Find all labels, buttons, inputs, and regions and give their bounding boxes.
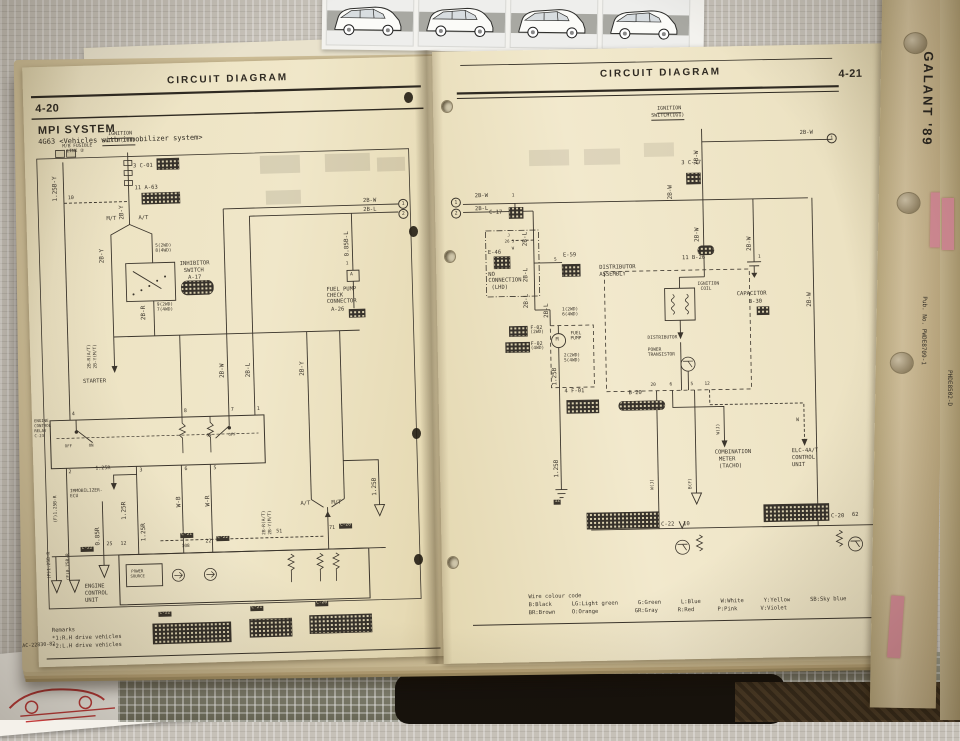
diagram-label: 2B-W — [747, 236, 753, 251]
diagram-label: 2B-L — [523, 268, 529, 283]
car-illustration — [602, 0, 691, 50]
diagram-label: 108 — [182, 545, 190, 550]
diagram-label: 11 A-63 — [135, 186, 158, 192]
diagram-label: 2B-Y — [99, 249, 105, 264]
connector-icon-a26 — [349, 309, 365, 317]
diagram-label: CONTROL — [85, 591, 108, 597]
diagram-label: 20 — [650, 384, 656, 389]
diagram-label: 4 — [72, 412, 75, 417]
diagram-label: 2B-W — [694, 227, 700, 242]
diagram-label: C-22 — [216, 536, 229, 541]
spine2-code: PHDE8502-D — [946, 370, 953, 406]
car-illustration — [510, 0, 599, 49]
car-illustration — [326, 0, 415, 47]
diagram-label: 2B-W — [668, 185, 674, 200]
diagram-label: C-22 — [81, 547, 94, 552]
diagram-label: INHIBITOR — [180, 261, 210, 267]
diagram-label: ON — [89, 444, 94, 448]
diagram-label: 2B-W — [363, 199, 376, 205]
diagram-label: OFF — [65, 444, 72, 448]
diagram-label: 2B-Y — [299, 361, 305, 376]
resistor-icon — [836, 530, 842, 546]
punch-hole — [414, 554, 423, 565]
diagram-label: 3 C-01 — [133, 164, 153, 170]
diagram-label: (2WD) — [530, 331, 544, 336]
diagram-label: 7 — [231, 408, 234, 413]
table-shadow — [395, 674, 785, 724]
diagram-label: ON — [206, 433, 211, 437]
diagram-label: (TACHO) — [719, 464, 742, 470]
diagram-label: 1.25B — [552, 368, 558, 386]
diagram-label: 2B-Y(M/T) — [269, 510, 274, 535]
spine-pub-no: Pub. No. PWDE8709-1 — [920, 296, 928, 365]
pink-index-tab — [942, 198, 954, 250]
ignition-coil-box — [665, 288, 696, 321]
punch-hole — [441, 100, 453, 113]
diagram-label: 1 — [512, 194, 515, 199]
diagram-label: 1.25B-Y — [52, 176, 59, 201]
connector-icon-f02-2wd — [509, 326, 527, 336]
diagram-label: W-B — [176, 496, 182, 507]
diagram-label: SOURCE — [130, 574, 145, 578]
connector-icon-e46 — [494, 257, 510, 269]
diagram-label: W — [796, 418, 799, 423]
diagram-label: B-30 — [749, 300, 762, 306]
diagram-label: 2B-W — [800, 131, 813, 137]
diagram-label: A — [350, 273, 353, 278]
diagram-label: A-17 — [188, 276, 201, 282]
diagram-label: C-20 — [831, 514, 844, 520]
connector-icon-f01 — [567, 400, 599, 414]
diagram-label: CAPACITOR — [737, 292, 767, 298]
diagram-label: C-22 — [158, 611, 171, 616]
diagram-label: C-20 — [339, 523, 352, 528]
connector-icon-b20 — [619, 401, 665, 411]
diagram-label: W(J) — [651, 479, 656, 490]
diagram-label: M/T — [331, 501, 341, 507]
diagram-label: 5 — [213, 466, 216, 471]
wire-arrows — [108, 360, 331, 523]
diagram-label: 8(4WD) — [155, 249, 171, 254]
diagram-label: 2B-L — [245, 363, 251, 378]
diagram-label: C-23 — [34, 434, 44, 438]
diagram-label: 2B-R — [141, 306, 147, 321]
diagram-label: 12 — [120, 542, 126, 547]
connector-pinout-c21 — [250, 618, 292, 637]
diagram-label: 11 B-26 — [682, 256, 705, 262]
diagram-label: B(F) — [689, 478, 694, 489]
diagram-label: 3 — [139, 468, 142, 473]
diagram-label: ECU — [70, 495, 78, 500]
diagram-label: METER — [719, 457, 736, 463]
connector-icon-f02-4wd — [506, 342, 530, 352]
diagram-label: 6(4WD) — [562, 313, 578, 318]
diagram-label: 5 — [554, 259, 557, 264]
resistor-icon — [288, 554, 295, 582]
manual-page-4-21: CIRCUIT DIAGRAM 4-21 — [432, 43, 900, 664]
power-transistor-icon — [681, 357, 695, 371]
diagram-label: COMBINATION — [715, 450, 752, 456]
diagram-label: 2B-Y(M/T) — [94, 344, 99, 369]
diagram-label: A/T — [138, 216, 148, 222]
diagram-label: 2B-L — [475, 207, 488, 213]
diagram-label: A-26 — [331, 308, 344, 314]
connector-pinout-c22 — [587, 512, 659, 529]
diagram-label: LINK ② — [66, 150, 84, 155]
wire-colour-code-title: Wire colour code — [528, 594, 581, 601]
second-manual-spine: PHDE8502-D — [940, 0, 960, 720]
diagram-label: E-46 — [488, 251, 501, 257]
diagram-label: UNIT — [85, 599, 98, 605]
diagram-label: OFF — [228, 433, 235, 437]
diagram-label: 1 — [257, 407, 260, 412]
spine-title: GALANT '89 — [920, 51, 937, 147]
transistor-icon — [675, 540, 689, 554]
wires — [462, 125, 887, 625]
diagram-label: 2B-L — [544, 303, 550, 318]
wires — [33, 144, 441, 659]
diagram-label: 51 — [276, 529, 282, 534]
connector-icon-a17 — [181, 280, 213, 295]
diagram-label: DISTRIBUTOR — [648, 336, 678, 341]
connector-pinout-c20 — [310, 614, 372, 634]
resistor-icon — [333, 553, 340, 581]
engine-control-unit — [119, 548, 370, 605]
diagram-label: 25 — [106, 542, 112, 547]
diagram-label: COIL — [701, 288, 712, 293]
diagram-label: 12 — [554, 500, 562, 505]
binder-spine: GALANT '89 Pub. No. PWDE8709-1 — [870, 0, 948, 709]
diagram-label: 62 — [852, 513, 859, 519]
diagram-label: 2B-W — [220, 363, 226, 378]
connector-icon-c17-right — [686, 173, 700, 184]
bleed-through-marks — [260, 152, 406, 205]
diagram-label: ASSEMBLY — [599, 272, 626, 278]
diagram-label: (4WD) — [531, 347, 545, 352]
diagram-label: 1.25B — [372, 478, 379, 496]
diagram-label: 5 — [690, 383, 693, 388]
diagram-label: 2B-L — [363, 208, 376, 214]
diagram-label: C-21 — [180, 533, 193, 538]
diagram-label: M — [556, 338, 559, 343]
diagram-label: W(J) — [717, 424, 722, 435]
diagram-label: 2B-L — [524, 294, 530, 309]
diagram-label: 2B-W — [475, 194, 488, 200]
reference-page-car-illustrations — [322, 0, 705, 55]
diagram-label: 1 — [346, 262, 349, 267]
transistor-icon — [848, 537, 862, 551]
diagram-label: 26 3 — [505, 239, 515, 243]
diagram-label: 1 — [758, 256, 761, 261]
punch-hole — [409, 226, 418, 237]
diagram-label: DISTRIBUTOR — [599, 265, 636, 271]
punch-hole — [447, 556, 459, 569]
diagram-label: 6 — [184, 467, 187, 472]
diagram-label: 10 — [68, 196, 74, 201]
diagram-label: 2B-W — [807, 292, 813, 307]
connector-pinout-c20 — [764, 503, 829, 521]
diagram-label: 0.85B-L — [344, 231, 351, 256]
diagram-label: (LHD) — [492, 286, 509, 292]
resistor-icon — [317, 553, 324, 581]
connector-pinout-c22 — [153, 622, 232, 644]
diagram-label: C-20 — [315, 601, 328, 606]
diagram-label: SWITCH(IG1) — [651, 113, 684, 120]
diagram-label: E-59 — [563, 253, 576, 259]
diagram-label: 12 — [704, 383, 710, 388]
diagram-label: B-20 — [629, 391, 642, 397]
connector-icon-c01 — [157, 158, 179, 170]
diagram-label: W — [512, 246, 514, 250]
bleed-through-marks — [529, 142, 674, 166]
diagram-label: TRANSISTOR — [648, 353, 675, 358]
diagram-label: (F)0.75B-R — [67, 553, 72, 580]
resistor-icon — [696, 535, 702, 551]
diagram-label: 6 — [669, 383, 672, 388]
binder-post — [890, 352, 914, 374]
diagram-label: 1.25R — [95, 466, 110, 471]
diagram-label: 0.85R — [95, 527, 102, 545]
diagram-label: PUMP — [571, 337, 582, 342]
diagram-label: 8 — [184, 409, 187, 414]
diagram-label: (F)1.25B-R — [54, 496, 59, 523]
diagram-label: 4 F-01 — [565, 389, 585, 395]
diagram-label: C-17 — [489, 211, 502, 217]
diagram-label: J — [507, 234, 509, 238]
diagram-label: 22 — [205, 539, 211, 544]
distributor-assembly — [604, 269, 751, 392]
wire-arrows — [676, 272, 807, 448]
diagram-label: C-22 — [661, 522, 674, 528]
diagram-label: A/T — [300, 502, 310, 508]
diagram-label: C-21 — [250, 606, 263, 611]
diagram-label: SWITCH(IG1) — [102, 138, 135, 145]
connector-icon-c17-left — [509, 207, 523, 218]
diagram-label: W-R — [205, 495, 211, 506]
diagram-label: STARTER — [83, 379, 106, 385]
manual-page-4-20: CIRCUIT DIAGRAM 4-20 MPI SYSTEM 4G63 <Ve… — [22, 56, 449, 667]
connector-icon-a63 — [142, 192, 180, 204]
diagram-label: 2B-Y — [119, 205, 125, 220]
diagram-label: 10 — [683, 522, 690, 528]
binder-post — [896, 192, 920, 214]
diagram-label: M/T — [106, 217, 116, 223]
diagram-label: 1.25B — [554, 460, 560, 478]
car-illustration — [418, 0, 507, 48]
diagram-label: CONNECTOR — [327, 299, 357, 305]
diagram-label: CONNECTION — [488, 278, 521, 284]
remarks: Remarks*1:R.H drive vehicles*2:L.H drive… — [52, 626, 122, 652]
diagram-label: UNIT — [792, 463, 805, 469]
engine-control-relay — [50, 415, 265, 469]
diagram-label: 3 C-17 — [681, 161, 701, 167]
diagram-label: 1.25R — [121, 502, 128, 520]
punch-hole — [412, 428, 421, 439]
ecu-internal-glyphs — [675, 530, 862, 555]
connector-icon-b26 — [698, 246, 714, 255]
connector-icon-e59 — [562, 264, 580, 276]
connector-icon-b30 — [757, 307, 769, 315]
diagram-label: CONTROL — [792, 456, 815, 462]
punch-hole — [444, 250, 456, 263]
pink-index-tab — [887, 595, 904, 658]
diagram-label: 5(4WD) — [564, 359, 580, 364]
diagram-label: 2 — [68, 470, 71, 475]
ground-arrows — [692, 493, 702, 504]
diagram-label: (F)1.25B-R — [48, 552, 53, 579]
diagram-label: 71 — [329, 526, 335, 531]
diagram-label: 2B-L — [522, 232, 528, 247]
diagram-label: 7(4WD) — [157, 308, 173, 313]
punch-hole — [404, 92, 413, 103]
diagram-label: 1.25R — [141, 523, 148, 541]
